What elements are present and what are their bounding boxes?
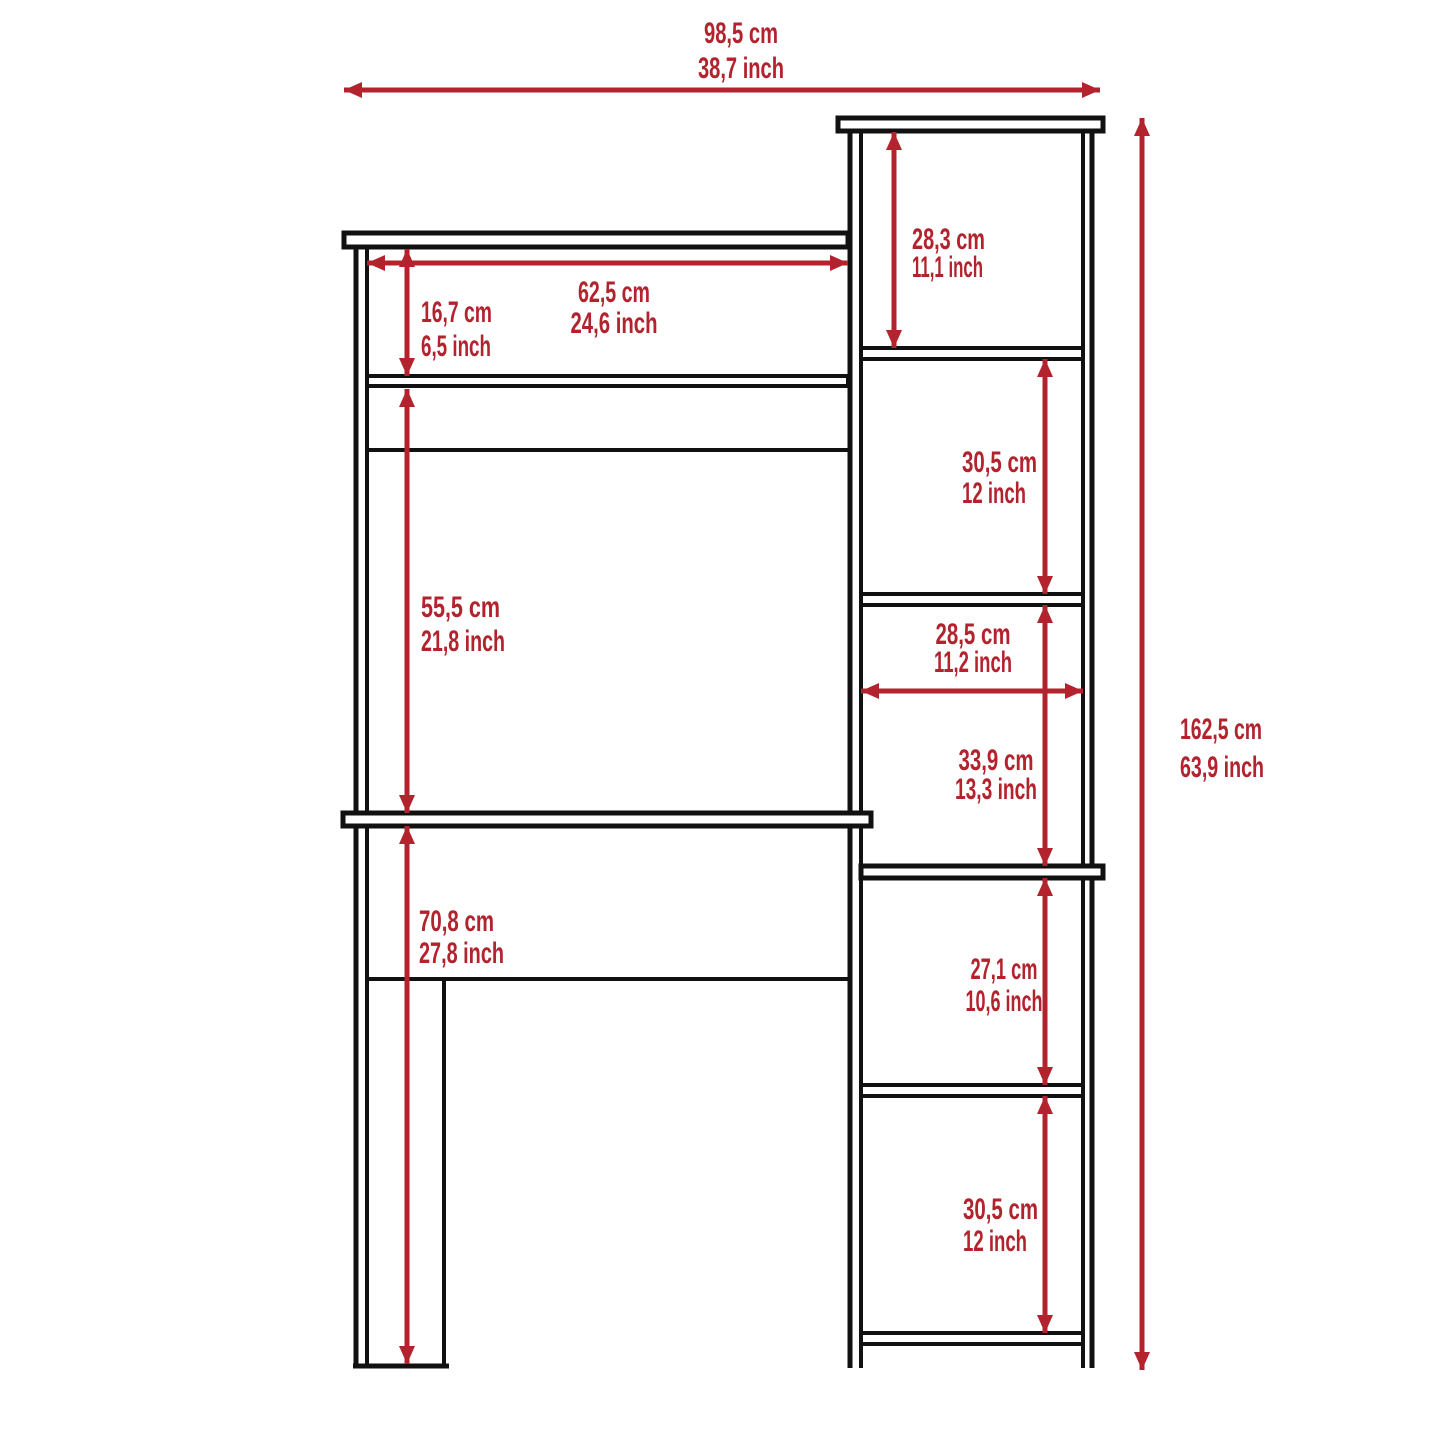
hutch-interior-width-label-inch: 24,6 inch [571, 307, 658, 340]
tower-compartment-5-label-cm: 30,5 cm [963, 1193, 1038, 1226]
tower-compartment-4-label-inch: 10,6 inch [966, 985, 1043, 1018]
tower-compartment-2-label-inch: 12 inch [962, 477, 1026, 510]
tower-interior-width-label-inch: 11,2 inch [934, 646, 1012, 679]
hutch-top-board [344, 233, 848, 247]
tower-compartment-1-label-inch: 11,1 inch [912, 251, 983, 284]
overall-width-label-cm: 98,5 cm [704, 17, 778, 50]
tower-top-board [838, 118, 1103, 131]
overall-height-label-inch: 63,9 inch [1180, 751, 1264, 784]
hutch-opening-height-label-inch: 21,8 inch [421, 625, 505, 658]
tower-compartment-5-label-inch: 12 inch [963, 1225, 1027, 1258]
hutch-opening-height-label-cm: 55,5 cm [421, 591, 500, 624]
tower-compartment-3-label-inch: 13,3 inch [955, 773, 1037, 806]
overall-width-label-inch: 38,7 inch [698, 52, 784, 85]
hutch-interior-width-label-cm: 62,5 cm [578, 276, 650, 309]
under-desk-clearance-label-inch: 27,8 inch [419, 937, 504, 970]
under-desk-clearance-label-cm: 70,8 cm [419, 905, 494, 938]
desk-surface-board [343, 813, 871, 826]
tower-compartment-2-label-cm: 30,5 cm [962, 446, 1037, 479]
overall-height-label-cm: 162,5 cm [1180, 713, 1262, 746]
tower-shelf-3-overhang [861, 866, 1103, 878]
tower-shelf-2 [861, 594, 1083, 605]
hutch-cubby-height-label-inch: 6,5 inch [421, 330, 491, 363]
tower-shelf-4 [861, 1085, 1083, 1096]
tower-shelf-5 [861, 1333, 1083, 1344]
furniture-dimension-diagram: 98,5 cm 38,7 inch 162,5 cm 63,9 inch 62,… [0, 0, 1445, 1445]
hutch-cubby-height-label-cm: 16,7 cm [421, 296, 492, 329]
tower-compartment-4-label-cm: 27,1 cm [971, 953, 1038, 986]
hutch-shelf [367, 376, 848, 386]
tower-shelf-1 [861, 348, 1083, 359]
